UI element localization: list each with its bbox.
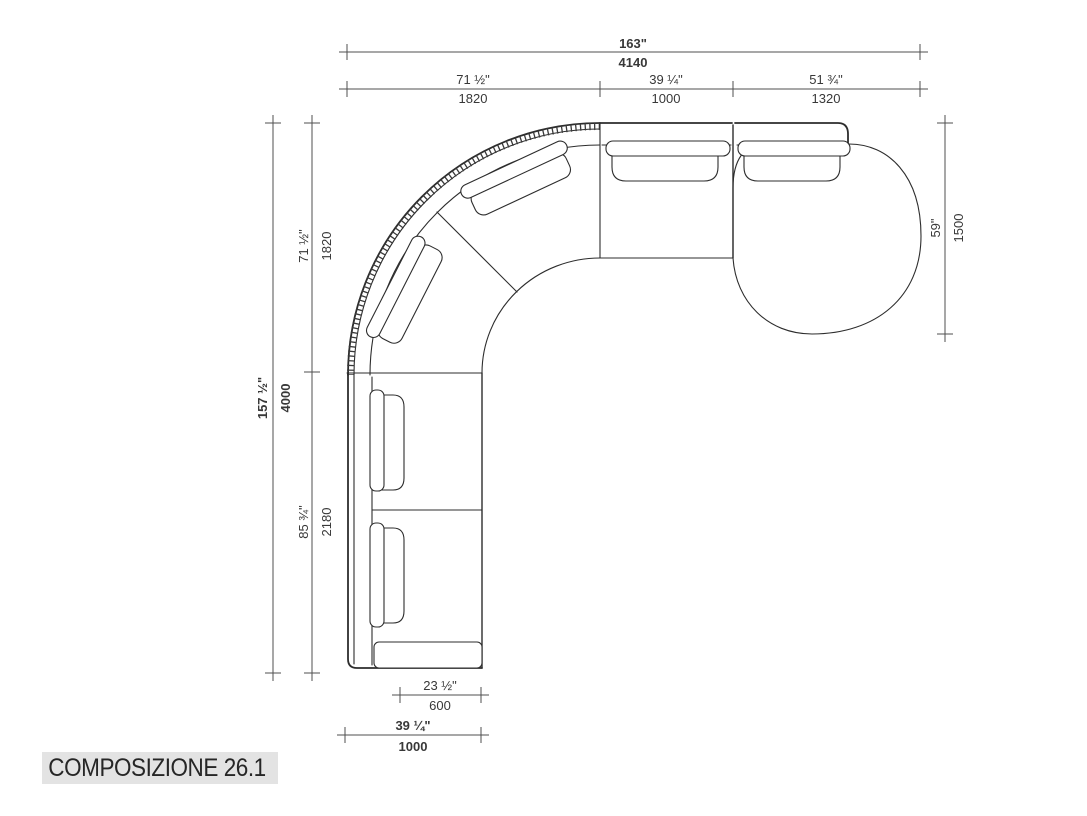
dim-top-segments: 71 ½" 1820 39 ¼" 1000 51 ¾" 1320 — [339, 72, 928, 106]
dim-left-seg2-inches: 85 ¾" — [296, 505, 311, 539]
dim-top-seg2-mm: 1000 — [652, 91, 681, 106]
composition-label: COMPOSIZIONE 26.1 — [42, 754, 266, 783]
back-cushion-corner-lower — [364, 234, 447, 350]
dim-top-seg2-inches: 39 ¼" — [649, 72, 683, 87]
dim-top-seg1-inches: 71 ½" — [456, 72, 490, 87]
dim-left-segments: 71 ½" 1820 85 ¾" 2180 — [296, 115, 334, 681]
composition-label-strip: COMPOSIZIONE 26.1 — [42, 752, 278, 784]
back-cushion-right-roll — [738, 141, 850, 156]
right-back-top-edge — [735, 123, 848, 143]
dim-top-seg3-inches: 51 ¾" — [809, 72, 843, 87]
dim-bottom-seat-mm: 600 — [429, 698, 451, 713]
back-cushion-corner-upper — [459, 139, 579, 221]
back-cushion-middle-roll — [606, 141, 730, 156]
dim-bottom-unit-mm: 1000 — [399, 739, 428, 754]
dim-top-seg1-mm: 1820 — [459, 91, 488, 106]
dim-right-inches: 59" — [928, 218, 943, 237]
back-cushion-left-lower — [370, 523, 404, 627]
dim-top-overall-inches: 163" — [619, 36, 647, 51]
dim-left-overall-mm: 4000 — [278, 384, 293, 413]
dim-left-seg1-inches: 71 ½" — [296, 229, 311, 263]
seam-corner-diagonal — [437, 212, 517, 292]
dim-left-seg2-mm: 2180 — [319, 508, 334, 537]
armrest — [374, 642, 482, 668]
back-cushion-left-upper — [370, 390, 404, 491]
dim-left-seg1-mm: 1820 — [319, 232, 334, 261]
dim-top-seg3-mm: 1320 — [812, 91, 841, 106]
dim-top-overall-mm: 4140 — [619, 55, 648, 70]
technical-drawing-canvas: 163" 4140 71 ½" 1820 39 ¼" 1000 51 ¾" 13… — [0, 0, 1087, 816]
dim-left-overall-inches: 157 ½" — [255, 377, 270, 419]
left-back-outer-edge — [348, 373, 482, 668]
dim-bottom-unit-inches: 39 ¼" — [395, 718, 430, 733]
dim-bottom-seat-inches: 23 ½" — [423, 678, 457, 693]
drawing-page: 163" 4140 71 ½" 1820 39 ¼" 1000 51 ¾" 13… — [0, 0, 1087, 816]
dim-top-overall: 163" 4140 — [339, 36, 928, 70]
dim-right-mm: 1500 — [951, 214, 966, 243]
sofa-plan — [347, 123, 921, 668]
dim-bottom-seat: 23 ½" 600 — [392, 678, 489, 713]
dim-left-overall: 157 ½" 4000 — [255, 115, 293, 681]
dim-bottom-unit: 39 ¼" 1000 — [337, 718, 489, 754]
dim-right-unit: 59" 1500 — [928, 115, 966, 342]
